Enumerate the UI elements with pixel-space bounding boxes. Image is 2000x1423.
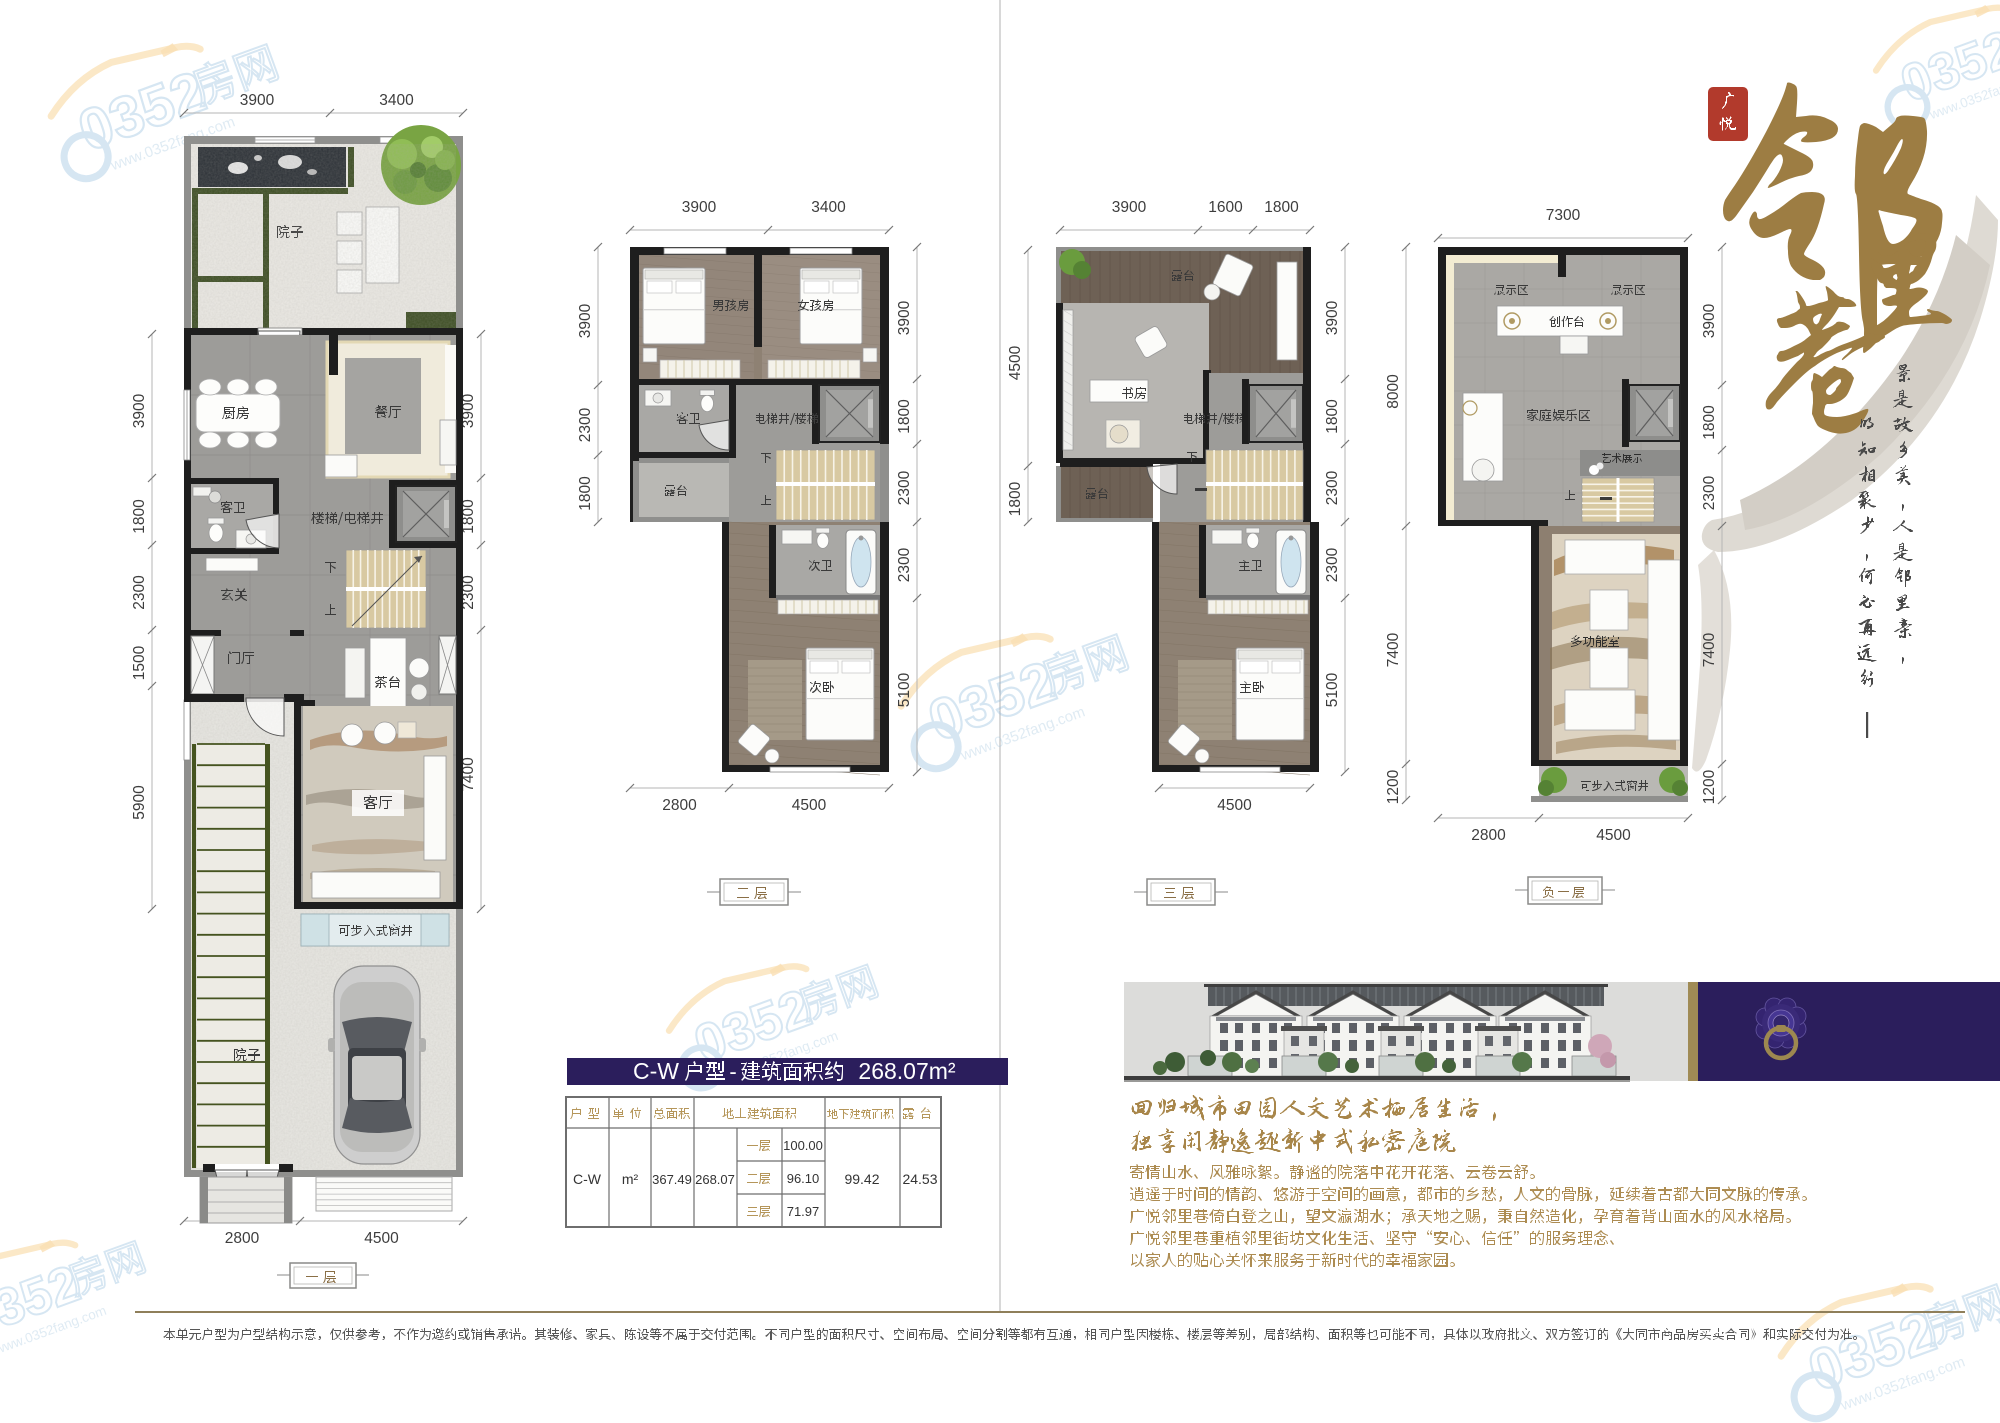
svg-text:7400: 7400 [1701, 632, 1718, 667]
svg-text:1800: 1800 [577, 476, 594, 511]
svg-text:96.10: 96.10 [787, 1171, 820, 1186]
svg-text:7300: 7300 [1546, 207, 1581, 224]
svg-text:3900: 3900 [577, 303, 594, 338]
svg-text:4500: 4500 [1007, 345, 1024, 380]
svg-text:268.07: 268.07 [695, 1172, 735, 1187]
svg-text:3900: 3900 [682, 199, 717, 216]
svg-text:2800: 2800 [225, 1230, 260, 1247]
svg-text:3400: 3400 [811, 199, 846, 216]
svg-text:5100: 5100 [896, 672, 913, 707]
svg-text:C-W: C-W [573, 1171, 602, 1187]
svg-text:3900: 3900 [131, 393, 148, 428]
svg-text:4500: 4500 [1217, 797, 1252, 814]
svg-text:367.49: 367.49 [652, 1172, 692, 1187]
svg-text:1800: 1800 [131, 499, 148, 534]
svg-text:4500: 4500 [364, 1230, 399, 1247]
svg-text:100.00: 100.00 [783, 1138, 823, 1153]
svg-text:2300: 2300 [896, 470, 913, 505]
svg-text:3400: 3400 [379, 92, 414, 109]
svg-text:1800: 1800 [896, 399, 913, 434]
svg-text:8000: 8000 [1385, 374, 1402, 409]
svg-text:C-W: C-W [633, 1058, 679, 1084]
svg-text:1800: 1800 [1324, 399, 1341, 434]
svg-text:1800: 1800 [1701, 405, 1718, 440]
svg-text:4500: 4500 [792, 797, 827, 814]
svg-text:3900: 3900 [240, 92, 275, 109]
svg-text:m²: m² [622, 1171, 639, 1187]
svg-text:1600: 1600 [1208, 199, 1243, 216]
svg-text:3900: 3900 [1324, 300, 1341, 335]
svg-text:5900: 5900 [131, 785, 148, 820]
svg-text:1500: 1500 [131, 645, 148, 680]
svg-text:-: - [729, 1059, 736, 1084]
svg-text:2800: 2800 [662, 797, 697, 814]
svg-text:2300: 2300 [131, 575, 148, 610]
svg-text:3900: 3900 [896, 300, 913, 335]
svg-text:2300: 2300 [896, 547, 913, 582]
svg-text:2300: 2300 [1324, 470, 1341, 505]
svg-text:2300: 2300 [1701, 475, 1718, 510]
svg-text:1200: 1200 [1701, 769, 1718, 804]
svg-text:7400: 7400 [1385, 632, 1402, 667]
svg-text:99.42: 99.42 [844, 1171, 879, 1187]
svg-text:3900: 3900 [1112, 199, 1147, 216]
svg-text:268.07m²: 268.07m² [858, 1058, 956, 1084]
svg-text:1800: 1800 [1264, 199, 1299, 216]
svg-text:71.97: 71.97 [787, 1204, 820, 1219]
svg-text:5100: 5100 [1324, 672, 1341, 707]
svg-text:3900: 3900 [1701, 303, 1718, 338]
svg-text:24.53: 24.53 [902, 1171, 937, 1187]
svg-text:4500: 4500 [1596, 827, 1631, 844]
svg-text:1800: 1800 [1007, 481, 1024, 516]
svg-text:1200: 1200 [1385, 769, 1402, 804]
svg-text:2800: 2800 [1471, 827, 1506, 844]
svg-text:2300: 2300 [577, 407, 594, 442]
svg-text:2300: 2300 [1324, 547, 1341, 582]
